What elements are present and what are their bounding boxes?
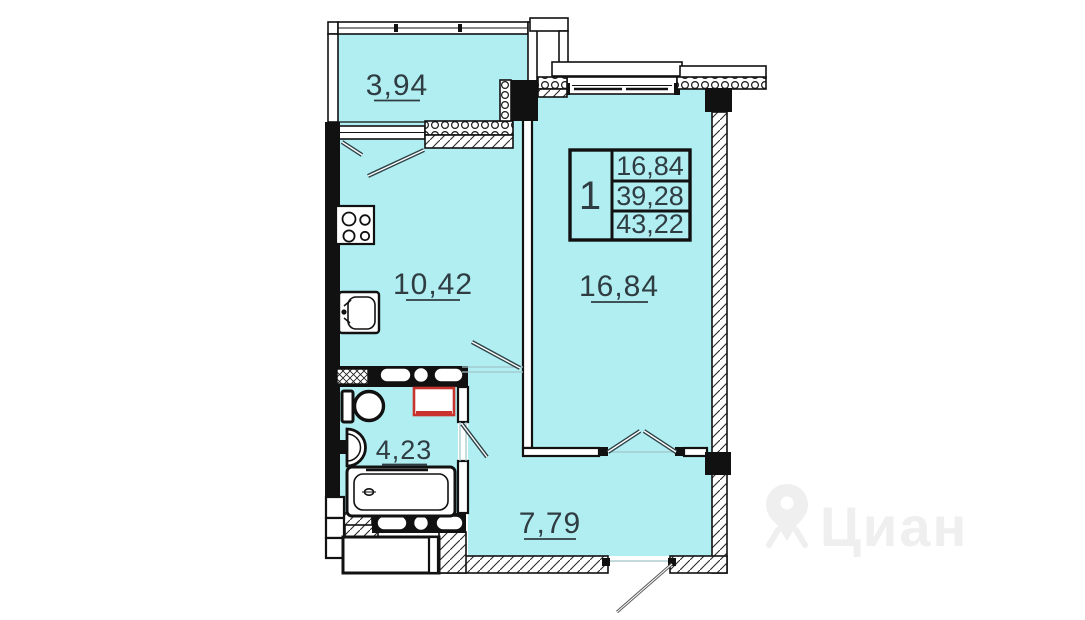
insulated-wall-vertical xyxy=(500,80,511,121)
vent-shaft-lattice xyxy=(337,369,368,384)
door-post xyxy=(599,447,608,456)
bathroom-right-wall-lower xyxy=(458,461,468,513)
right-outer-wall xyxy=(712,112,727,573)
vent-shaft-pill xyxy=(436,516,463,530)
stair-shaft-box xyxy=(343,537,439,573)
insulated-wall-top-right xyxy=(677,77,766,89)
rooms-count: 1 xyxy=(579,174,601,218)
floor-plan-page: 1 16,84 39,28 43,22 3,94 10,42 16,84 4,2… xyxy=(0,0,1085,620)
glazing-tick xyxy=(394,24,398,32)
hatched-wall-top-left xyxy=(538,89,567,97)
cian-pin-icon xyxy=(766,484,808,545)
column-top-right xyxy=(705,88,732,112)
living-outer-band xyxy=(552,62,682,76)
stove-icon xyxy=(330,206,374,244)
bathtub-icon xyxy=(347,467,455,516)
bottom-wall-right xyxy=(670,556,727,573)
insulated-wall-balcony xyxy=(425,121,513,135)
insulated-wall-top-left xyxy=(538,77,567,89)
vent-shaft-pill xyxy=(434,368,463,382)
kitchen-sink-icon xyxy=(339,292,379,333)
hallway-area-label: 7,79 xyxy=(519,507,581,540)
shaft-hatch-right xyxy=(439,532,466,573)
duct-box xyxy=(326,518,344,538)
entrance-door xyxy=(610,561,672,612)
living-area-value: 16,84 xyxy=(616,151,684,181)
balcony-corner-wall xyxy=(328,22,338,34)
balcony-left-wall xyxy=(328,34,338,122)
duct-box xyxy=(326,497,344,518)
vent-shaft-pill xyxy=(377,516,407,530)
column-balcony xyxy=(511,80,538,121)
watermark: Циан xyxy=(766,484,968,558)
neighbor-wall-top xyxy=(530,18,568,31)
hatched-wall-balcony xyxy=(425,135,513,148)
total-area-value: 43,22 xyxy=(616,209,684,239)
partition-kitchen-living xyxy=(523,100,532,448)
bathroom-right-wall-upper xyxy=(458,387,468,422)
floor-plan-canvas: 1 16,84 39,28 43,22 3,94 10,42 16,84 4,2… xyxy=(0,0,1085,620)
living-bottom-wall-right xyxy=(684,448,707,456)
glazing-tick xyxy=(458,24,462,32)
toilet-icon xyxy=(342,391,384,422)
vent-shaft-round xyxy=(414,368,429,383)
watermark-text: Циан xyxy=(820,495,968,558)
balcony-area-label: 3,94 xyxy=(366,69,428,102)
living-area-label: 16,84 xyxy=(579,270,659,303)
room-living xyxy=(532,88,712,448)
vent-shaft-pill xyxy=(380,368,411,382)
kitchen-area-label: 10,42 xyxy=(393,268,473,301)
area-without-balcony-value: 39,28 xyxy=(616,181,684,211)
washing-machine-icon xyxy=(414,388,454,415)
bathroom-area-label: 4,23 xyxy=(376,435,433,465)
entrance-door-post xyxy=(602,558,610,566)
door-post xyxy=(675,447,684,456)
stair-shaft-divider xyxy=(429,537,438,573)
living-outer-band-right xyxy=(680,66,766,78)
left-bearing-wall xyxy=(325,122,340,497)
column-mid-right xyxy=(705,452,731,475)
living-bottom-wall-left xyxy=(523,448,599,456)
vent-shaft-round xyxy=(414,516,429,531)
duct-box xyxy=(326,538,344,558)
